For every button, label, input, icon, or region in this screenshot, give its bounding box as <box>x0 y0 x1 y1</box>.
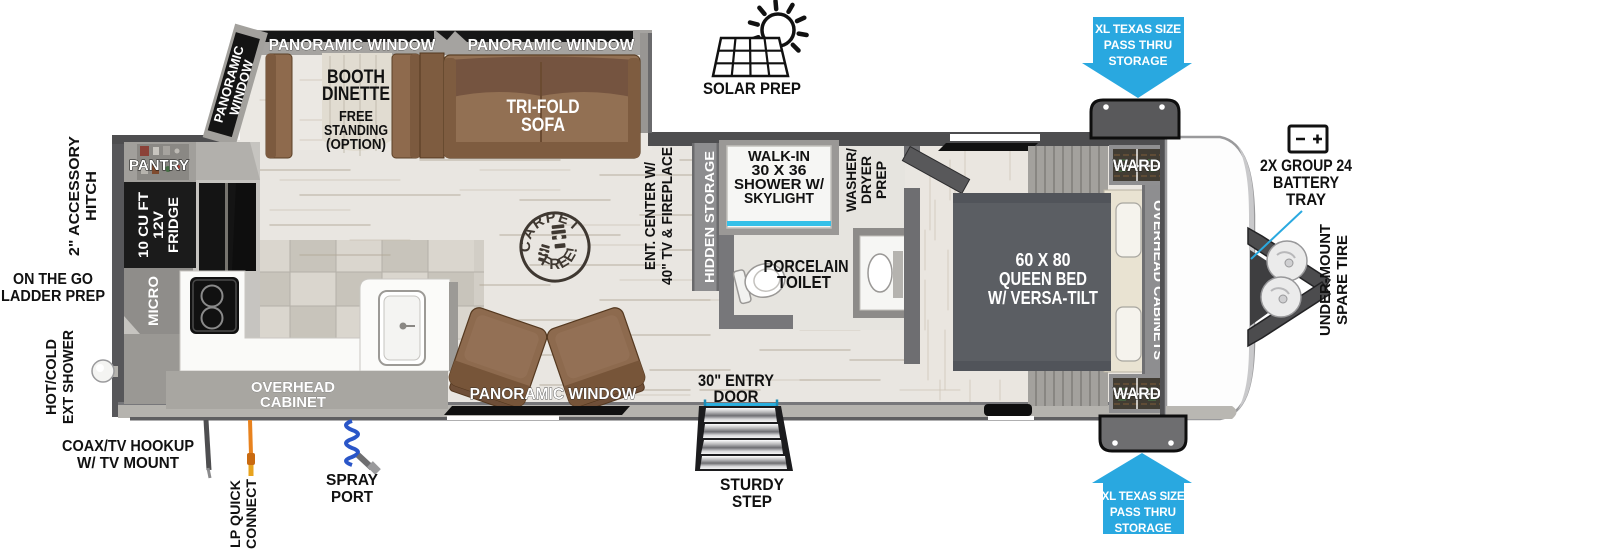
svg-text:UNDER-MOUNT: UNDER-MOUNT <box>1317 224 1334 336</box>
svg-text:PANORAMIC WINDOW: PANORAMIC WINDOW <box>269 37 436 54</box>
svg-text:PREP: PREP <box>873 161 889 199</box>
svg-text:WARD: WARD <box>1113 385 1161 403</box>
svg-text:40" TV & FIREPLACE: 40" TV & FIREPLACE <box>660 147 676 285</box>
svg-text:SPARE TIRE: SPARE TIRE <box>1334 235 1351 325</box>
svg-text:COAX/TV HOOKUP: COAX/TV HOOKUP <box>62 438 194 455</box>
svg-text:STORAGE: STORAGE <box>1114 522 1171 535</box>
svg-text:12V: 12V <box>151 211 166 239</box>
svg-text:WARD: WARD <box>1113 157 1161 175</box>
svg-text:CONNECT: CONNECT <box>243 479 259 549</box>
svg-text:XL TEXAS SIZE: XL TEXAS SIZE <box>1095 22 1181 36</box>
svg-text:FRIDGE: FRIDGE <box>166 197 181 253</box>
svg-text:TRAY: TRAY <box>1286 191 1326 209</box>
svg-text:PASS THRU: PASS THRU <box>1104 38 1172 52</box>
svg-text:ENT. CENTER W/: ENT. CENTER W/ <box>643 162 659 270</box>
svg-text:QUEEN BED: QUEEN BED <box>999 268 1087 289</box>
svg-text:PORT: PORT <box>331 489 373 506</box>
svg-text:MICRO: MICRO <box>146 276 161 326</box>
svg-text:60 X 80: 60 X 80 <box>1016 249 1071 270</box>
svg-text:PASS THRU: PASS THRU <box>1110 506 1176 519</box>
svg-text:PANTRY: PANTRY <box>129 157 189 174</box>
svg-text:STEP: STEP <box>732 493 772 511</box>
svg-text:2" ACCESSORY: 2" ACCESSORY <box>66 136 83 256</box>
svg-text:CABINET: CABINET <box>260 394 326 411</box>
svg-text:XL TEXAS SIZE: XL TEXAS SIZE <box>1102 490 1185 503</box>
svg-text:STURDY: STURDY <box>720 476 784 494</box>
svg-text:TOILET: TOILET <box>777 272 831 292</box>
svg-text:HIDDEN STORAGE: HIDDEN STORAGE <box>702 151 717 283</box>
svg-text:WASHER/: WASHER/ <box>843 148 859 212</box>
svg-text:SOFA: SOFA <box>521 114 565 136</box>
svg-text:LADDER PREP: LADDER PREP <box>1 288 105 305</box>
svg-text:SPRAY: SPRAY <box>326 472 378 489</box>
svg-text:10 CU FT: 10 CU FT <box>136 191 151 258</box>
svg-text:(OPTION): (OPTION) <box>326 137 386 153</box>
svg-text:HITCH: HITCH <box>83 171 100 221</box>
svg-text:SKYLIGHT: SKYLIGHT <box>744 190 814 207</box>
svg-text:W/ TV MOUNT: W/ TV MOUNT <box>77 455 179 472</box>
svg-text:EXT SHOWER: EXT SHOWER <box>60 330 77 424</box>
svg-text:2X GROUP 24: 2X GROUP 24 <box>1260 157 1353 175</box>
svg-text:DINETTE: DINETTE <box>322 83 390 105</box>
svg-text:PANORAMIC WINDOW: PANORAMIC WINDOW <box>470 386 637 403</box>
svg-text:HOT/COLD: HOT/COLD <box>43 339 60 415</box>
svg-text:STORAGE: STORAGE <box>1108 54 1167 68</box>
svg-text:DRYER: DRYER <box>858 156 874 204</box>
svg-text:SOLAR PREP: SOLAR PREP <box>703 80 801 98</box>
svg-text:BATTERY: BATTERY <box>1273 174 1339 192</box>
svg-text:LP QUICK: LP QUICK <box>227 480 243 548</box>
svg-text:PANORAMIC WINDOW: PANORAMIC WINDOW <box>468 37 635 54</box>
svg-text:ON THE GO: ON THE GO <box>13 271 93 288</box>
svg-text:W/ VERSA-TILT: W/ VERSA-TILT <box>988 287 1099 308</box>
